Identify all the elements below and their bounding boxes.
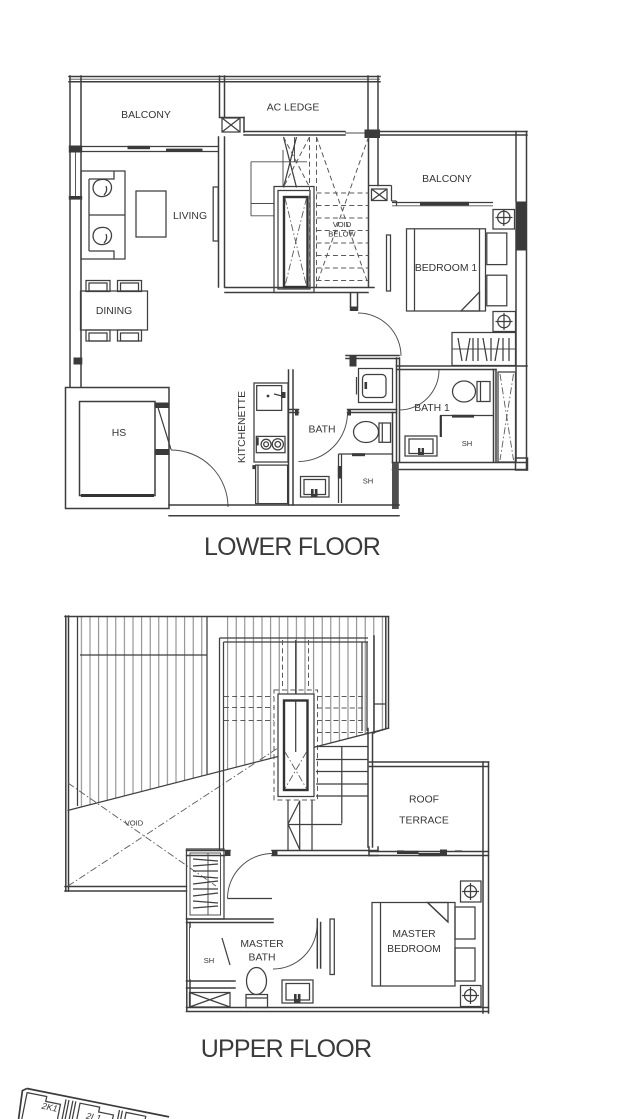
svg-text:BEDROOM 1: BEDROOM 1	[415, 263, 478, 274]
svg-text:LOWER FLOOR: LOWER FLOOR	[204, 533, 380, 561]
svg-text:UPPER FLOOR: UPPER FLOOR	[201, 1035, 371, 1063]
svg-text:KITCHENETTE: KITCHENETTE	[237, 391, 248, 463]
svg-text:BATH 1: BATH 1	[414, 403, 450, 414]
svg-text:MASTER: MASTER	[392, 929, 436, 940]
svg-text:BELOW: BELOW	[328, 230, 356, 239]
svg-text:VOID: VOID	[333, 220, 352, 229]
svg-text:2K1: 2K1	[40, 1101, 59, 1114]
svg-text:ROOF: ROOF	[409, 795, 439, 806]
svg-text:AC LEDGE: AC LEDGE	[267, 103, 320, 114]
svg-text:SH: SH	[204, 956, 215, 965]
svg-text:VOID: VOID	[125, 819, 144, 828]
svg-text:SH: SH	[462, 439, 473, 448]
svg-text:BEDROOM: BEDROOM	[387, 944, 441, 955]
svg-text:DINING: DINING	[96, 306, 132, 317]
svg-text:TERRACE: TERRACE	[399, 816, 449, 827]
svg-text:MASTER: MASTER	[240, 939, 284, 950]
svg-text:BALCONY: BALCONY	[422, 174, 472, 185]
svg-text:LIVING: LIVING	[173, 211, 207, 222]
svg-text:HS: HS	[112, 428, 127, 439]
svg-text:BATH: BATH	[249, 953, 276, 964]
svg-text:BALCONY: BALCONY	[121, 110, 171, 121]
svg-text:SH: SH	[363, 477, 374, 486]
svg-text:BATH: BATH	[309, 425, 336, 436]
